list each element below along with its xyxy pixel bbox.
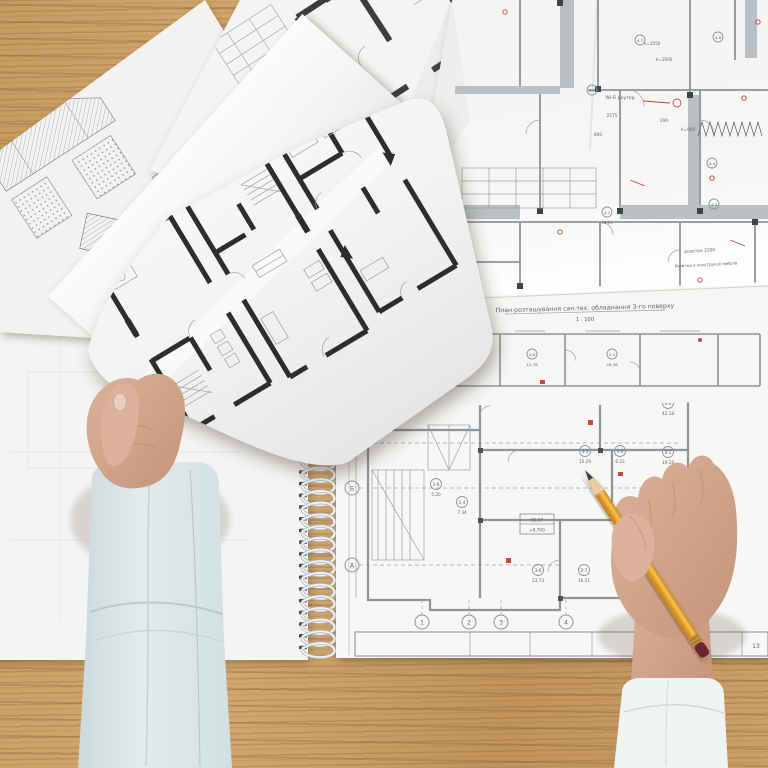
right-cuff (614, 678, 728, 768)
svg-text:1-6: 1-6 (433, 482, 440, 487)
svg-text:5-4: 5-4 (617, 449, 624, 454)
svg-text:h=1600: h=1600 (656, 57, 673, 62)
svg-text:+8.700: +8.700 (529, 528, 545, 533)
left-sleeve (78, 462, 232, 768)
svg-text:12.76: 12.76 (526, 362, 538, 367)
svg-text:42.18: 42.18 (662, 411, 674, 416)
svg-text:4-1: 4-1 (665, 450, 672, 455)
scene-art: В Б А 1 2 3 4 4-3 15.29 5-4 6.23 1-6 5.2… (0, 0, 768, 768)
svg-text:16.51: 16.51 (578, 578, 590, 583)
svg-text:1: 1 (420, 620, 424, 627)
svg-text:3-6: 3-6 (535, 568, 542, 573)
blueprint-scale: 1 : 100 (576, 317, 594, 323)
svg-text:18.21: 18.21 (601, 220, 613, 225)
svg-text:3: 3 (499, 620, 503, 627)
svg-text:4-6: 4-6 (529, 352, 536, 357)
svg-text:Б: Б (350, 486, 354, 493)
svg-text:23.73: 23.73 (532, 578, 544, 583)
svg-text:4-7: 4-7 (637, 38, 644, 43)
svg-text:2: 2 (467, 620, 471, 627)
svg-text:7.34: 7.34 (457, 510, 467, 515)
svg-text:5.20: 5.20 (431, 492, 441, 497)
svg-text:6.23: 6.23 (615, 459, 625, 464)
svg-text:26.26: 26.26 (606, 362, 618, 367)
svg-text:85.27: 85.27 (531, 518, 543, 523)
svg-text:Wi-Fi роутер: Wi-Fi роутер (605, 95, 634, 101)
svg-text:1-4: 1-4 (459, 500, 466, 505)
thumbnail (114, 393, 127, 411)
page-number: 13 (752, 643, 760, 650)
svg-text:600: 600 (594, 132, 602, 137)
photo-canvas: В Б А 1 2 3 4 4-3 15.29 5-4 6.23 1-6 5.2… (0, 0, 768, 768)
svg-text:5-1: 5-1 (609, 352, 616, 357)
svg-text:4-2: 4-2 (604, 210, 611, 215)
svg-text:4-8: 4-8 (715, 35, 722, 40)
svg-text:4-4: 4-4 (709, 161, 716, 166)
svg-text:4-3: 4-3 (711, 202, 718, 207)
svg-text:4: 4 (564, 620, 568, 627)
svg-text:4-5: 4-5 (589, 88, 596, 93)
svg-text:h=1050: h=1050 (644, 41, 661, 46)
svg-text:h=900: h=900 (681, 127, 695, 132)
svg-text:2-7: 2-7 (581, 568, 588, 573)
svg-text:4-3: 4-3 (582, 449, 589, 454)
svg-text:15.29: 15.29 (579, 459, 591, 464)
svg-text:2575: 2575 (607, 113, 618, 118)
svg-text:290: 290 (660, 118, 668, 123)
